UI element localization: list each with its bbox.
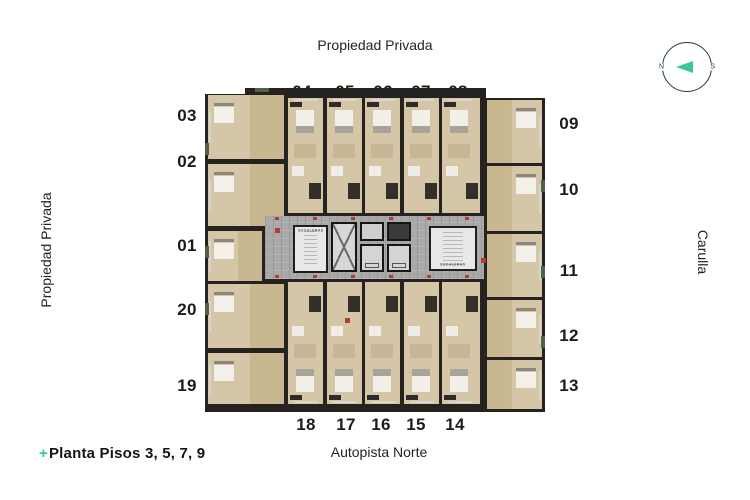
door-marker (275, 275, 279, 278)
compass-n-label: N (658, 64, 665, 71)
unit-number-19: 19 (177, 376, 197, 396)
machine-room (360, 222, 384, 241)
compass-icon: N S (662, 42, 712, 92)
door-marker (427, 275, 431, 278)
door-marker (481, 258, 486, 263)
caption-text: Planta Pisos 3, 5, 7, 9 (49, 445, 205, 462)
door-marker (313, 275, 317, 278)
elevator-car-2 (387, 244, 411, 272)
door-marker (351, 217, 355, 220)
unit-16-floor (365, 282, 400, 404)
unit-09-floor (487, 100, 542, 163)
compass-arrow-icon (676, 61, 693, 73)
unit-03-floor (208, 95, 284, 159)
corridor: ESCALERAS ESCALERAS (265, 216, 484, 279)
planter (205, 246, 209, 258)
unit-number-17: 17 (336, 415, 356, 435)
stairs-left: ESCALERAS (293, 225, 328, 273)
unit-number-12: 12 (559, 326, 579, 346)
unit-11-floor (487, 234, 542, 297)
unit-number-15: 15 (406, 415, 426, 435)
stairs-right: ESCALERAS (429, 226, 477, 271)
door-marker (275, 228, 280, 233)
unit-number-02: 02 (177, 152, 197, 172)
unit-number-13: 13 (559, 376, 579, 396)
unit-15-floor (404, 282, 439, 404)
unit-20-floor (208, 284, 284, 348)
unit-number-14: 14 (445, 415, 465, 435)
door-marker (351, 275, 355, 278)
elevator-shaft (331, 222, 357, 272)
stair-treads (443, 232, 462, 265)
planter (205, 143, 209, 155)
door-marker (345, 318, 350, 323)
elevator-car-1 (360, 244, 384, 272)
label-carulla-right: Carulla (695, 230, 711, 274)
unit-05-floor (327, 98, 362, 213)
unit-06-floor (365, 98, 400, 213)
unit-number-11: 11 (560, 261, 579, 281)
unit-number-18: 18 (296, 415, 316, 435)
label-propiedad-privada-left: Propiedad Privada (38, 192, 54, 307)
door-marker (275, 217, 279, 220)
stair-treads (304, 231, 318, 266)
planter (255, 88, 269, 92)
label-autopista-norte: Autopista Norte (331, 444, 428, 460)
outline-notch (486, 88, 545, 98)
caption-planta-pisos: +Planta Pisos 3, 5, 7, 9 (39, 445, 205, 462)
door-marker (465, 275, 469, 278)
unit-14-floor (442, 282, 480, 404)
unit-18-floor (288, 282, 323, 404)
planter (541, 180, 545, 192)
unit-07-floor (404, 98, 439, 213)
label-propiedad-privada-top: Propiedad Privada (317, 37, 432, 53)
service-shaft (387, 222, 411, 241)
planter (541, 336, 545, 348)
door-marker (313, 217, 317, 220)
stairs-left-label: ESCALERAS (298, 229, 323, 232)
outline-notch (205, 88, 245, 94)
door-marker (427, 217, 431, 220)
floorplan-page: Propiedad Privada Propiedad Privada Caru… (0, 0, 750, 500)
unit-10-floor (487, 166, 542, 231)
unit-number-20: 20 (177, 300, 197, 320)
unit-number-09: 09 (559, 114, 579, 134)
planter (541, 266, 545, 278)
unit-08-floor (442, 98, 480, 213)
planter (205, 303, 209, 315)
floorplan: ESCALERAS ESCALERAS (205, 88, 545, 412)
unit-01-floor (208, 231, 262, 281)
stairs-right-label: ESCALERAS (440, 263, 465, 266)
door-marker (465, 217, 469, 220)
unit-04-floor (288, 98, 323, 213)
unit-13-floor (487, 360, 542, 409)
unit-number-03: 03 (177, 106, 197, 126)
door-marker (389, 217, 393, 220)
unit-number-10: 10 (559, 180, 579, 200)
unit-number-16: 16 (371, 415, 391, 435)
unit-number-01: 01 (177, 236, 197, 256)
door-marker (389, 275, 393, 278)
unit-12-floor (487, 300, 542, 357)
compass-s-label: S (709, 64, 716, 71)
plus-icon: + (39, 445, 48, 462)
unit-19-floor (208, 353, 284, 404)
unit-17-floor (327, 282, 362, 404)
